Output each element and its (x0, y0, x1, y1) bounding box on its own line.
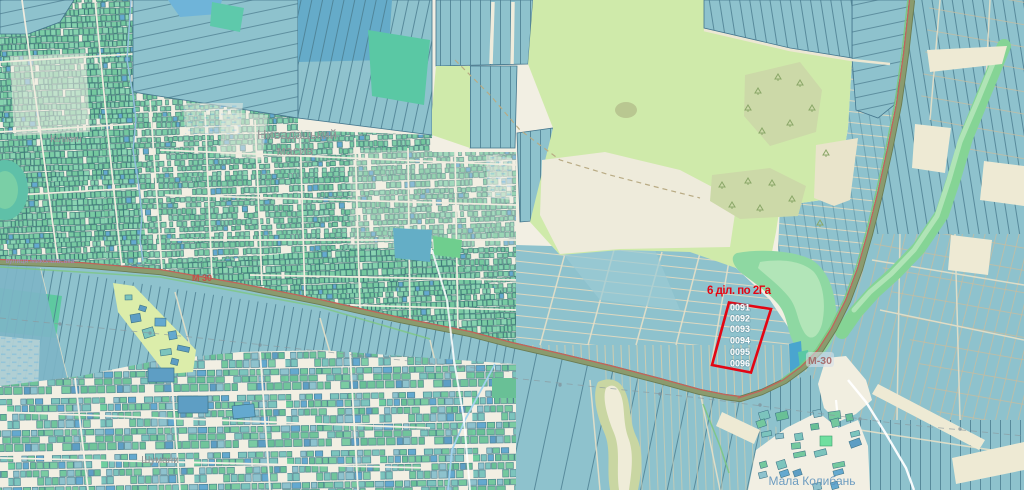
svg-text:вулиця Миколаївська: вулиця Миколаївська (5, 258, 74, 265)
svg-text:0091: 0091 (730, 303, 750, 313)
svg-text:0094: 0094 (730, 335, 750, 345)
svg-text:Нивадацький: Нивадацький (257, 127, 337, 142)
svg-text:Кілікин: Кілікин (50, 134, 82, 145)
svg-text:0092: 0092 (730, 313, 750, 323)
svg-text:0093: 0093 (730, 324, 750, 334)
svg-text:0095: 0095 (730, 347, 750, 357)
svg-text:6 діл. по 2Га: 6 діл. по 2Га (707, 285, 772, 297)
svg-text:масив: масив (277, 143, 314, 158)
svg-text:0096: 0096 (730, 358, 750, 368)
svg-text:Шумани: Шумани (141, 455, 179, 466)
svg-text:М 30: М 30 (192, 273, 212, 283)
svg-text:М-30: М-30 (808, 355, 832, 367)
svg-text:Мала Колибань: Мала Колибань (768, 474, 855, 488)
